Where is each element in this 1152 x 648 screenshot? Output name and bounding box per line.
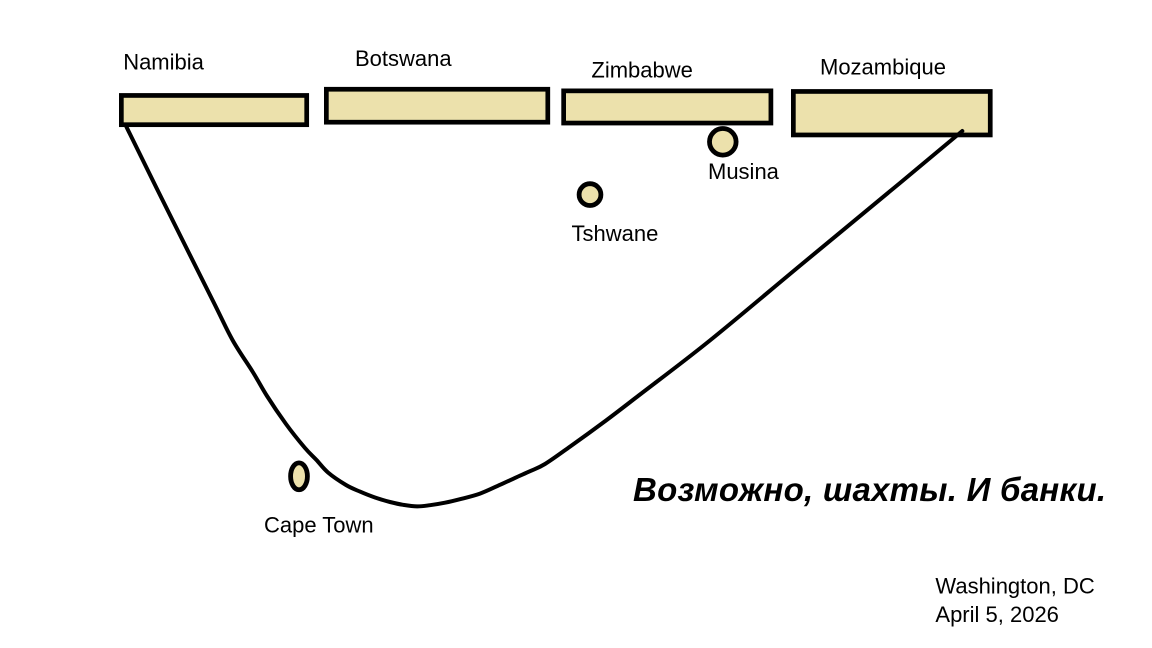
svg-text:Musina: Musina	[708, 159, 780, 184]
svg-text:Возможно, шахты. И банки.: Возможно, шахты. И банки.	[633, 471, 1106, 508]
svg-text:Mozambique: Mozambique	[820, 55, 946, 80]
svg-text:April 5, 2026: April 5, 2026	[935, 602, 1059, 627]
svg-text:Washington, DC: Washington, DC	[935, 573, 1094, 598]
svg-text:Cape Town: Cape Town	[264, 513, 374, 538]
svg-text:Tshwane: Tshwane	[572, 221, 659, 246]
svg-text:Zimbabwe: Zimbabwe	[591, 57, 692, 82]
svg-text:Botswana: Botswana	[355, 46, 452, 71]
svg-text:Namibia: Namibia	[123, 50, 204, 75]
